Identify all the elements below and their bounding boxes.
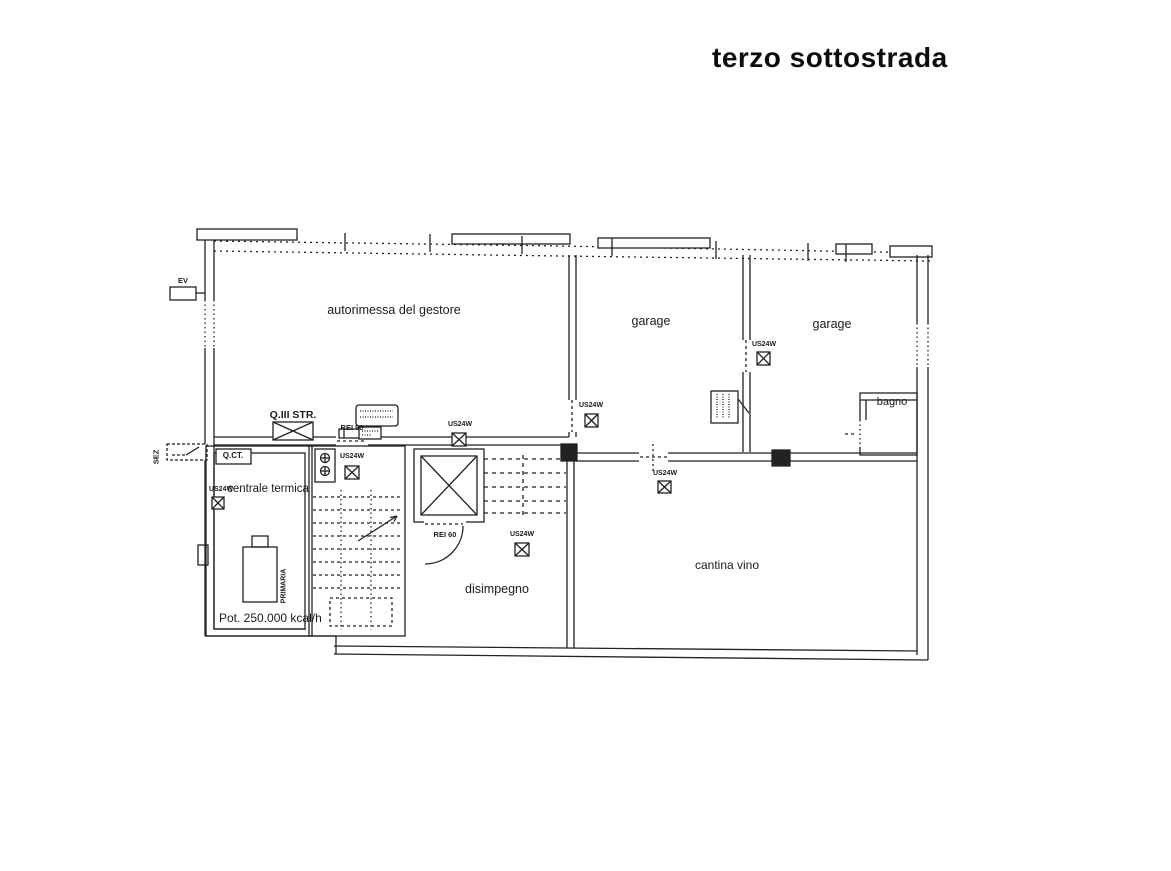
elevator-shaft [414,449,484,564]
room-label-garage-1: garage [632,314,671,328]
qiii-str-damper-icon [273,422,313,440]
right-wall [914,255,931,660]
sez-switch-symbol [167,444,207,460]
qiii-str-label: Q.III STR. [270,409,317,421]
boiler-cap [252,536,268,547]
room-label-centrale-termica: centrale termica [227,483,309,497]
room-label-autorimessa: autorimessa del gestore [327,303,460,317]
primaria-label: PRIMARIA [281,569,288,604]
us24w-marker-icon [212,352,770,556]
pillar [561,444,577,461]
garage-divider-wall-2 [711,255,753,452]
floor-plan-drawing [0,0,1171,871]
garage-divider-wall-1 [566,255,579,437]
pillar [772,450,790,466]
us24w-label-5: US24W [510,531,534,538]
rei60-label: REI 60 [434,530,457,539]
boiler [243,547,277,602]
us24w-label-2: US24W [752,341,776,348]
annotation-box-vertical [711,391,738,423]
us24w-label-7: US24W [209,486,233,493]
room-label-cantina-vino: cantina vino [695,558,759,572]
corridor-dashes [484,455,566,519]
us24w-label-1: US24W [579,402,603,409]
ev-junction-box [170,287,205,300]
disimpegno-cantina-wall [567,453,574,648]
rei90-label: REI 90 [341,423,364,432]
centrale-termica-walls [206,446,312,636]
stair-direction-arrow [358,516,397,541]
room-divider-wall-east [561,444,917,472]
us24w-label-4: US24W [448,421,472,428]
room-label-disimpegno: disimpegno [465,582,529,596]
floor-plan-page: terzo sottostrada [0,0,1171,871]
boiler-power-label: Pot. 250.000 kcal/h [219,611,322,625]
sez-label: SEZ [152,450,161,465]
us24w-label-3: US24W [340,453,364,460]
us24w-label-6: US24W [653,470,677,477]
top-wall [197,229,932,262]
ev-label: EV [178,276,188,285]
annotation-box-top [356,405,398,439]
room-label-bagno: bagno [877,396,908,408]
qct-label: Q.CT. [223,451,243,460]
room-divider-wall-west [214,429,569,448]
room-label-garage-2: garage [813,317,852,331]
